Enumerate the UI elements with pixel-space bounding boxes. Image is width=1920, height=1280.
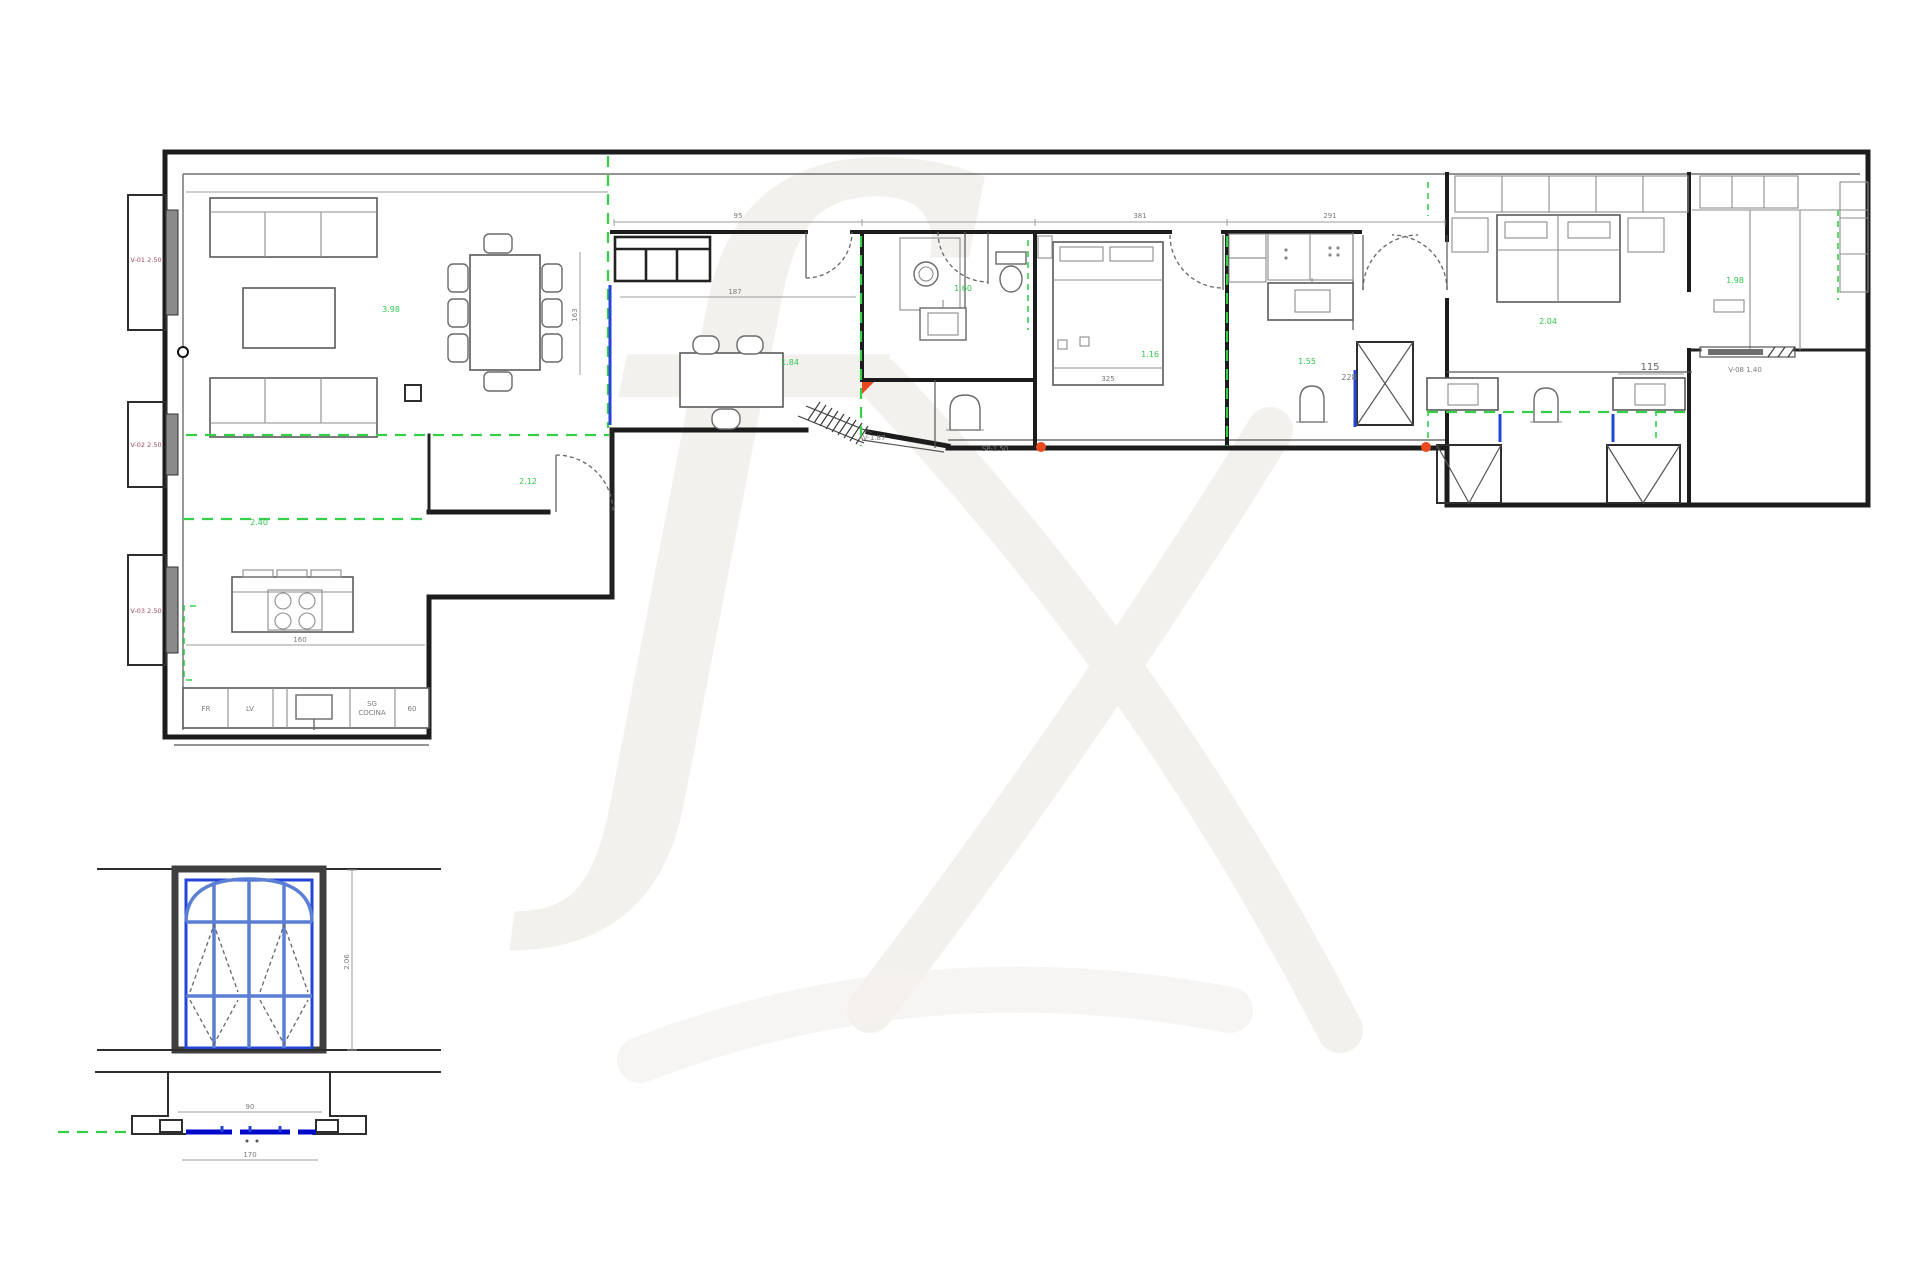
- floor-plan-page: f: [0, 0, 1920, 1280]
- wardrobe-v-right: [1607, 445, 1680, 503]
- bed-1: [1053, 242, 1163, 385]
- top-closet-cells: [1700, 176, 1798, 208]
- annotation-door: V-08 1.40: [1728, 366, 1762, 374]
- wardrobe-x: [1357, 342, 1413, 425]
- kitchen-island: [232, 570, 353, 632]
- dressing-bath2: [1229, 234, 1413, 425]
- sofa-top: [210, 198, 377, 257]
- bedroom-1: [1038, 236, 1163, 385]
- dim-label: 187: [728, 288, 741, 296]
- area-label-room3: 1.98: [1726, 276, 1744, 285]
- living-room: [210, 198, 562, 437]
- kitchen-unit-label: COCINA: [358, 709, 386, 717]
- area-label-bed2: 2.04: [1539, 317, 1557, 326]
- sill-blue: [186, 1126, 316, 1132]
- dim-label: 381: [1133, 212, 1146, 220]
- window-label: V-02 2.50: [130, 441, 161, 449]
- closet-cells: [1229, 234, 1266, 282]
- kitchen-unit-label: LV: [246, 705, 254, 713]
- nightstand: [1038, 236, 1052, 258]
- dim-label: 163: [571, 308, 579, 321]
- bench: [1714, 300, 1744, 312]
- round-sink-icon: [914, 262, 938, 286]
- toilet-3-icon: [1530, 388, 1562, 422]
- watermark: f: [509, 20, 1340, 1060]
- wc-toilet-icon: [946, 395, 984, 430]
- detail-drawing: 90 170 2.06: [58, 869, 441, 1160]
- column: [405, 385, 421, 401]
- red-dot: [1036, 442, 1046, 452]
- kitchen-counter: FR LV SG COCINA 60: [183, 688, 429, 730]
- window-label: V-03 2.50: [130, 607, 161, 615]
- detail-height-label: 2.06: [343, 954, 351, 970]
- vanity-2: [1268, 278, 1353, 320]
- wall-node: [178, 347, 188, 357]
- dim-label: 325: [1101, 375, 1114, 383]
- side-table: [1452, 218, 1488, 252]
- arched-door-glazing: [186, 879, 312, 1048]
- section-dot: [246, 1140, 249, 1143]
- washer-icon: [920, 300, 966, 340]
- area-label-study: 1.84: [781, 358, 799, 367]
- bath1-door: [938, 232, 988, 284]
- floor-plan-canvas: f: [0, 0, 1920, 1280]
- area-label-kitchen: 2.40: [250, 518, 268, 527]
- window-bays: [128, 195, 188, 665]
- detail-dim-label: 170: [243, 1151, 256, 1159]
- window-bay-right: [1840, 182, 1868, 292]
- jamb-section-right: [312, 1072, 366, 1134]
- kitchen-unit-label: SG: [367, 700, 377, 708]
- toilet-2-icon: [1296, 386, 1328, 422]
- area-label-bath1: 1.60: [954, 284, 972, 293]
- dim-label: 160: [293, 636, 306, 644]
- window-label: V-01 2.50: [130, 256, 161, 264]
- double-door: [1363, 235, 1447, 290]
- dining-table: [448, 234, 562, 391]
- side-table: [1628, 218, 1664, 252]
- dim-label: 291: [1323, 212, 1336, 220]
- bed-2: [1497, 215, 1620, 302]
- dim-label-115: 115: [1640, 362, 1659, 373]
- kitchen-unit-label: FR: [202, 705, 211, 713]
- coffee-table: [243, 288, 335, 348]
- area-label-hall: 1.16: [1141, 350, 1159, 359]
- detail-dim-label: 90: [246, 1103, 255, 1111]
- headboard-closet-row: [1455, 176, 1688, 212]
- area-label-living: 3.98: [382, 305, 400, 314]
- annotation-ramp: AV-1.87: [859, 434, 886, 442]
- dim-label-228: 228: [1341, 373, 1356, 382]
- cabinet-row: [1268, 234, 1353, 280]
- annotation-step: SP-1.50: [982, 445, 1009, 453]
- sliding-rail: [1700, 347, 1795, 357]
- vanity-right: [1613, 378, 1685, 410]
- section-dot: [256, 1140, 259, 1143]
- area-label-entry: 2.12: [519, 477, 537, 486]
- svg-text:f: f: [509, 20, 996, 974]
- dim-label: 95: [734, 212, 743, 220]
- area-label-bath2: 1.55: [1298, 357, 1316, 366]
- toilet-icon: [996, 252, 1026, 292]
- red-dot: [1421, 442, 1431, 452]
- bedroom1-door: [1170, 235, 1223, 290]
- room-3: [1692, 176, 1868, 357]
- study-sofa: [615, 237, 710, 281]
- bedroom-2: [1427, 176, 1688, 503]
- kitchen: FR LV SG COCINA 60: [183, 570, 429, 730]
- jamb-section-left: [132, 1072, 186, 1134]
- sofa-bottom: [210, 378, 377, 437]
- vanity-left: [1427, 378, 1498, 410]
- kitchen-unit-label: 60: [408, 705, 417, 713]
